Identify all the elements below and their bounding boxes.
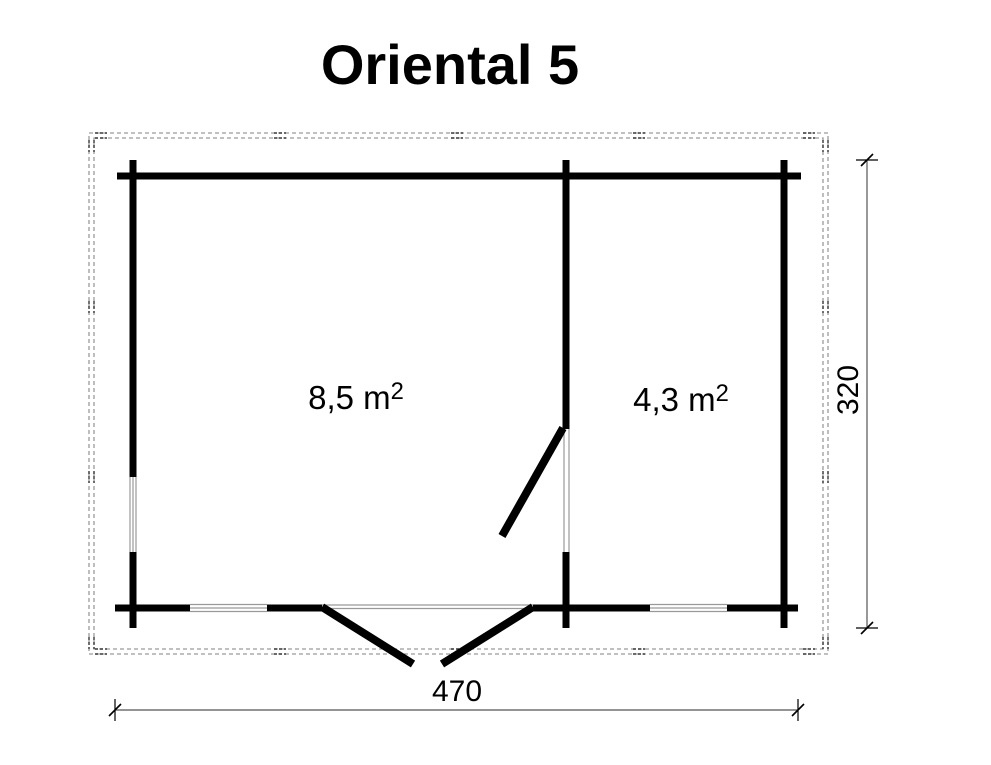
room-area-value-main: 8,5 m <box>308 379 391 416</box>
entrance-door-right-leaf <box>442 607 533 664</box>
height-dimension-label: 320 <box>832 365 866 415</box>
interior-door-opening <box>564 429 569 552</box>
bottom-right-window <box>650 605 727 612</box>
room-area-label-second: 4,3 m2 <box>633 381 729 419</box>
room-area-value-second: 4,3 m <box>633 381 716 418</box>
door-leaves <box>322 428 563 664</box>
entrance-threshold <box>322 605 533 609</box>
left-wall-window <box>130 477 136 552</box>
width-dimension-label: 470 <box>432 675 482 709</box>
bottom-left-window <box>190 605 267 612</box>
room-area-label-main: 8,5 m2 <box>308 379 404 417</box>
room-area-exponent-second: 2 <box>716 380 729 407</box>
interior-door-leaf <box>502 428 563 536</box>
entrance-door-left-leaf <box>322 607 413 664</box>
plan-title: Oriental 5 <box>0 32 900 97</box>
room-area-exponent-main: 2 <box>391 378 404 405</box>
floor-plan-page: Oriental 5 8,5 m2 4,3 m2 470 320 <box>0 0 991 765</box>
windows-and-openings <box>130 429 727 612</box>
